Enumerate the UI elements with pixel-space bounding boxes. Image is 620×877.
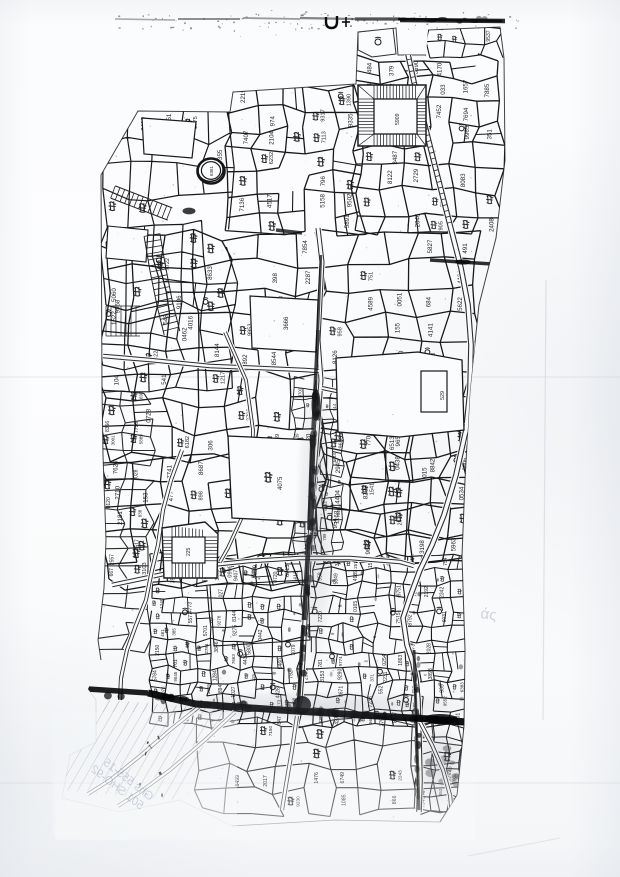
svg-text:9965: 9965	[464, 125, 471, 139]
svg-text:155: 155	[394, 322, 401, 333]
svg-text:225: 225	[186, 547, 192, 556]
svg-text:7079: 7079	[291, 644, 297, 655]
svg-text:2784: 2784	[204, 643, 209, 654]
svg-text:5800: 5800	[247, 643, 253, 654]
svg-text:5701: 5701	[203, 625, 209, 636]
svg-text:5349: 5349	[333, 573, 339, 584]
svg-text:7113: 7113	[321, 131, 327, 143]
svg-text:8700: 8700	[297, 387, 302, 397]
svg-text:385: 385	[171, 628, 176, 636]
svg-text:514: 514	[332, 403, 337, 411]
svg-text:905: 905	[439, 221, 445, 230]
svg-text:892: 892	[242, 354, 249, 365]
svg-text:5889: 5889	[138, 434, 143, 445]
svg-text:5963: 5963	[451, 537, 458, 551]
svg-text:2231: 2231	[383, 671, 389, 682]
svg-text:3153: 3153	[320, 671, 326, 682]
svg-text:667: 667	[109, 568, 115, 577]
svg-text:9659: 9659	[339, 436, 345, 448]
svg-text:6580: 6580	[251, 568, 256, 579]
svg-text:8356: 8356	[105, 421, 111, 432]
svg-text:5460: 5460	[278, 658, 284, 669]
svg-text:2192: 2192	[424, 586, 430, 597]
svg-text:3487: 3487	[392, 150, 399, 164]
svg-text:838: 838	[137, 509, 142, 517]
svg-text:028: 028	[134, 469, 140, 478]
svg-text:2181: 2181	[117, 511, 124, 525]
svg-text:1390: 1390	[347, 94, 353, 106]
svg-text:5827: 5827	[427, 239, 434, 253]
svg-text:1863: 1863	[398, 655, 404, 666]
svg-text:4773: 4773	[187, 602, 193, 613]
svg-text:7515: 7515	[336, 508, 341, 518]
svg-text:0120: 0120	[106, 497, 112, 508]
svg-text:3103: 3103	[142, 562, 148, 574]
svg-text:3666: 3666	[284, 316, 290, 330]
svg-text:5622: 5622	[457, 297, 464, 311]
svg-text:6383: 6383	[460, 682, 465, 693]
svg-text:7452: 7452	[436, 104, 443, 118]
svg-text:7136: 7136	[239, 197, 246, 211]
svg-text:8633: 8633	[207, 266, 214, 280]
svg-text:9545: 9545	[173, 671, 178, 682]
svg-text:1217: 1217	[221, 372, 227, 384]
svg-text:3846: 3846	[214, 641, 220, 652]
svg-text:2104: 2104	[268, 130, 275, 144]
svg-text:898: 898	[199, 491, 205, 500]
svg-text:9502: 9502	[347, 193, 354, 207]
svg-text:6361: 6361	[209, 165, 214, 176]
svg-text:9275: 9275	[233, 625, 239, 636]
svg-text:529: 529	[440, 391, 446, 400]
svg-text:6232: 6232	[269, 152, 275, 164]
svg-text:8144: 8144	[214, 343, 221, 357]
svg-text:9317: 9317	[320, 109, 326, 121]
svg-text:2557: 2557	[110, 554, 116, 565]
svg-text:8842: 8842	[429, 458, 436, 472]
svg-text:0165: 0165	[353, 601, 359, 612]
svg-text:306: 306	[207, 440, 214, 451]
svg-text:8208: 8208	[363, 485, 370, 499]
svg-text:2408: 2408	[488, 218, 495, 232]
svg-text:6182: 6182	[185, 436, 191, 448]
svg-text:8083: 8083	[460, 173, 467, 187]
svg-text:1909: 1909	[206, 684, 211, 695]
svg-text:8792: 8792	[408, 614, 414, 625]
svg-text:άς: άς	[479, 605, 497, 624]
svg-text:4075: 4075	[278, 476, 284, 490]
svg-text:5891: 5891	[344, 214, 351, 228]
svg-text:1541: 1541	[369, 483, 375, 495]
svg-text:9751: 9751	[397, 585, 403, 596]
svg-text:379: 379	[388, 65, 395, 76]
svg-text:033: 033	[440, 84, 447, 95]
svg-text:355: 355	[217, 149, 224, 160]
svg-text:4170: 4170	[437, 62, 444, 76]
svg-text:0051: 0051	[396, 292, 403, 306]
svg-text:8687: 8687	[198, 461, 205, 475]
svg-text:7663: 7663	[231, 654, 236, 665]
svg-text:015: 015	[422, 467, 429, 478]
svg-text:9290: 9290	[338, 669, 344, 680]
svg-text:9537: 9537	[486, 30, 492, 41]
svg-text:9278: 9278	[216, 615, 221, 626]
svg-text:754: 754	[443, 557, 449, 566]
svg-text:7854: 7854	[302, 240, 309, 254]
svg-text:3898: 3898	[428, 668, 434, 679]
svg-text:684: 684	[426, 296, 433, 307]
svg-text:1697: 1697	[139, 391, 144, 402]
svg-text:7626: 7626	[113, 460, 120, 474]
svg-text:4430: 4430	[243, 654, 249, 665]
svg-text:4589: 4589	[368, 296, 375, 310]
svg-text:5784: 5784	[153, 670, 159, 681]
svg-text:491: 491	[462, 243, 469, 254]
svg-text:6031: 6031	[442, 611, 448, 622]
svg-text:9774: 9774	[338, 656, 343, 667]
svg-text:2287: 2287	[305, 270, 312, 284]
svg-text:119: 119	[251, 674, 256, 682]
svg-text:7150: 7150	[268, 725, 273, 736]
svg-text:2046: 2046	[415, 213, 422, 227]
svg-text:958: 958	[338, 327, 344, 336]
svg-text:9083: 9083	[365, 540, 372, 554]
svg-text:8122: 8122	[387, 170, 394, 184]
svg-text:371: 371	[370, 674, 375, 682]
svg-text:1240: 1240	[159, 598, 164, 609]
svg-text:6513: 6513	[389, 436, 396, 450]
svg-text:5158: 5158	[320, 193, 327, 207]
svg-text:7407: 7407	[243, 130, 250, 144]
svg-text:2342: 2342	[439, 587, 445, 598]
svg-text:4989: 4989	[353, 570, 359, 581]
svg-text:027: 027	[219, 589, 225, 598]
svg-text:351: 351	[487, 129, 494, 140]
svg-text:461: 461	[160, 629, 165, 637]
svg-text:974: 974	[269, 116, 276, 127]
svg-text:0254: 0254	[382, 654, 388, 665]
svg-text:8144: 8144	[232, 611, 238, 622]
svg-text:0442: 0442	[258, 629, 264, 640]
svg-text:398: 398	[272, 273, 279, 284]
svg-text:5577: 5577	[188, 612, 194, 623]
svg-text:484: 484	[367, 62, 374, 73]
svg-text:7885: 7885	[484, 83, 491, 97]
svg-text:939: 939	[439, 684, 445, 693]
svg-text:9106: 9106	[176, 295, 183, 309]
svg-text:9407: 9407	[233, 570, 239, 581]
svg-text:4517: 4517	[267, 194, 274, 208]
svg-text:9335: 9335	[347, 113, 354, 127]
svg-text:894: 894	[218, 685, 224, 694]
svg-text:0462: 0462	[182, 327, 189, 341]
svg-text:796: 796	[320, 176, 327, 187]
svg-text:7716: 7716	[134, 422, 140, 433]
svg-text:8544: 8544	[271, 351, 278, 365]
svg-text:2729: 2729	[413, 168, 420, 182]
svg-text:0728: 0728	[146, 408, 153, 422]
svg-text:5909: 5909	[395, 113, 401, 125]
svg-text:4141: 4141	[428, 323, 435, 337]
svg-text:2028: 2028	[427, 643, 433, 654]
svg-text:2150: 2150	[155, 644, 161, 655]
svg-text:1657: 1657	[462, 79, 469, 93]
svg-text:3001: 3001	[111, 435, 116, 446]
svg-text:2420: 2420	[397, 513, 403, 525]
svg-text:751: 751	[368, 272, 374, 281]
svg-text:1284: 1284	[213, 670, 219, 681]
svg-text:701: 701	[173, 659, 179, 668]
